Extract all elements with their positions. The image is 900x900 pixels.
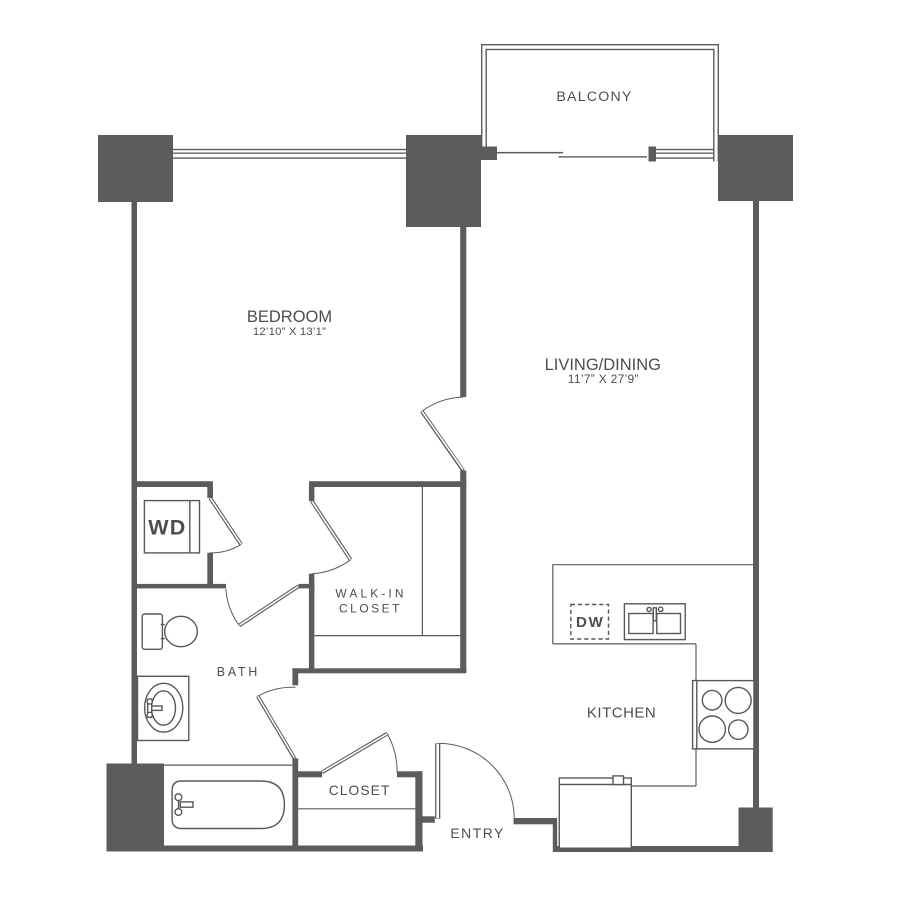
svg-text:11’7” X 27’9”: 11’7” X 27’9” [568,372,639,386]
svg-text:12’10” X 13’1”: 12’10” X 13’1” [253,326,326,338]
svg-text:WALK-IN: WALK-IN [335,587,406,601]
svg-text:CLOSET: CLOSET [339,602,402,616]
svg-text:WD: WD [148,516,186,540]
svg-text:BATH: BATH [217,665,260,679]
svg-text:BALCONY: BALCONY [556,89,632,105]
svg-text:BEDROOM: BEDROOM [247,308,332,326]
svg-text:ENTRY: ENTRY [450,825,504,841]
svg-text:DW: DW [576,614,605,631]
svg-text:CLOSET: CLOSET [329,783,391,798]
svg-text:KITCHEN: KITCHEN [587,704,656,721]
